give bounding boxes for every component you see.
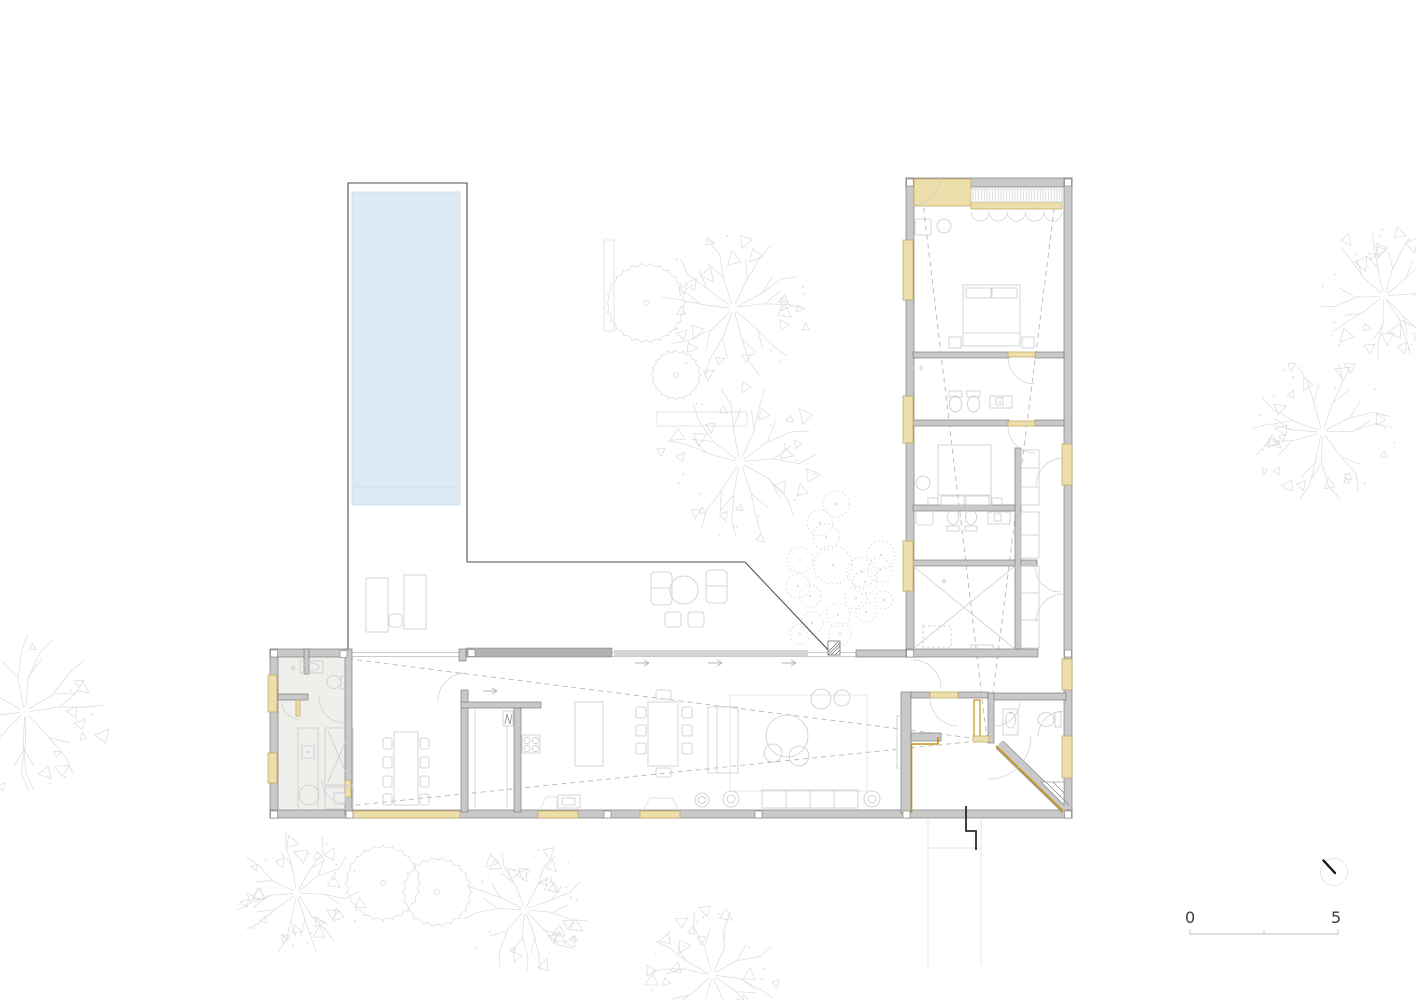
floor-plan-sheet: 0 5 bbox=[0, 0, 1416, 1000]
shrub bbox=[845, 587, 867, 609]
slide-arrows bbox=[483, 660, 796, 694]
garden-planters bbox=[604, 240, 747, 426]
kitchen-fixtures bbox=[475, 702, 709, 810]
entry-diagonal-wall bbox=[999, 744, 1066, 809]
bathroom1-fixtures bbox=[949, 391, 1012, 412]
planter bbox=[604, 240, 614, 331]
tree-palm bbox=[1321, 227, 1416, 360]
sun-loungers bbox=[366, 575, 426, 632]
tree-palm bbox=[464, 848, 586, 972]
pool bbox=[352, 192, 460, 505]
bedroom-wing-partitions bbox=[913, 352, 1064, 649]
shrub bbox=[787, 547, 813, 573]
shrub bbox=[801, 612, 823, 634]
shrub bbox=[799, 585, 821, 607]
tree-palm bbox=[1252, 364, 1395, 500]
outdoor-seating bbox=[651, 570, 727, 627]
wardrobe-block bbox=[914, 179, 971, 206]
shrub bbox=[807, 510, 833, 536]
bathroom2-fixtures bbox=[947, 510, 1010, 532]
shrub bbox=[875, 591, 893, 609]
kitchen-island bbox=[575, 702, 603, 766]
scale-bar: 0 5 bbox=[1185, 908, 1341, 934]
powder-room-fixtures bbox=[1003, 709, 1061, 735]
tree-palm bbox=[645, 906, 779, 1000]
landscape-trees bbox=[0, 227, 1416, 1000]
planter bbox=[657, 412, 747, 426]
rug bbox=[730, 695, 867, 791]
gold-accents bbox=[912, 700, 1064, 812]
shrub bbox=[813, 524, 839, 550]
tree-palm bbox=[662, 235, 809, 380]
shrub bbox=[856, 602, 876, 622]
tree-round bbox=[651, 350, 701, 400]
north-arrow-icon bbox=[1321, 859, 1348, 886]
tree-palm bbox=[0, 634, 109, 791]
tree-round bbox=[345, 845, 421, 921]
living-room-furniture bbox=[708, 689, 902, 808]
scale-zero-label: 0 bbox=[1185, 908, 1195, 927]
entry-door-sill bbox=[973, 736, 989, 742]
living-wing-walls bbox=[270, 649, 1072, 818]
tree-palm bbox=[657, 382, 821, 542]
sliding-glass-wall bbox=[348, 641, 906, 694]
shrub bbox=[826, 603, 850, 627]
shrub bbox=[867, 541, 895, 569]
curtain bbox=[971, 212, 1062, 221]
bedroom2-furniture bbox=[916, 445, 1002, 525]
wall-hatch-block bbox=[828, 641, 840, 655]
shrub bbox=[814, 546, 852, 584]
shrub bbox=[823, 491, 849, 517]
shrub bbox=[853, 570, 877, 594]
tree-round bbox=[606, 263, 686, 342]
tree-round bbox=[402, 857, 472, 926]
secondary-table bbox=[394, 732, 418, 805]
scale-five-label: 5 bbox=[1331, 908, 1341, 927]
entry-walkway bbox=[928, 806, 981, 966]
shrub bbox=[868, 558, 892, 582]
floor-plan-canvas: 0 5 bbox=[0, 0, 1416, 1000]
